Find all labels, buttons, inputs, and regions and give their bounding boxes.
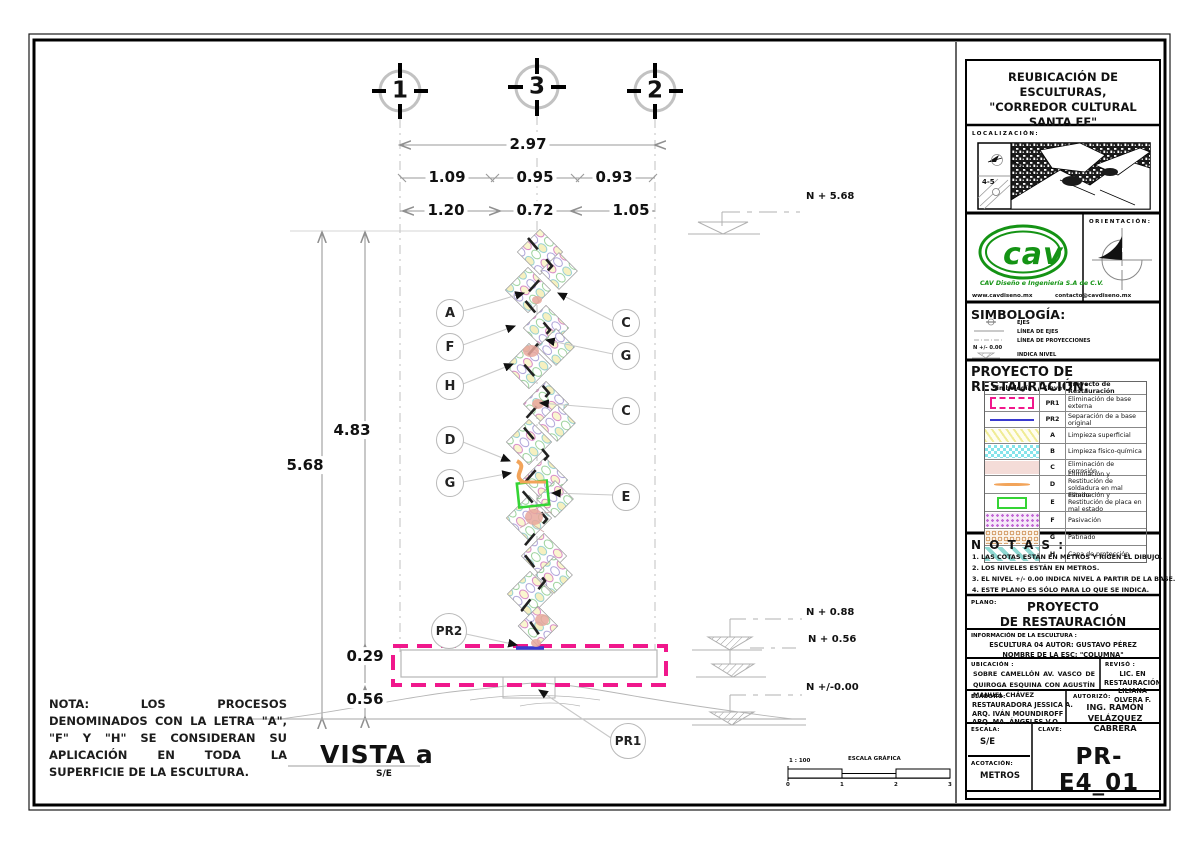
reviso-text: LIC. EN RESTAURACIÓN LILIANA OLVERA F. [1104,670,1161,704]
level-marker-top [688,212,800,234]
graphic-scale-bar [788,766,950,781]
dim-below-base: 0.56 [343,690,386,708]
project-title-line3: SANTA FE" [967,115,1159,130]
elaboro-line1: RESTAURADORA JESSICA A. [972,701,1073,710]
legend-table: Simbología Clave Proyecto de Restauració… [984,381,1147,563]
legend-header-clave: Clave [1040,382,1066,394]
callout-PR1: PR1 [610,723,646,759]
plano-line2: DE RESTAURACIÓN [967,615,1159,630]
orange-line-swatch [994,483,1030,486]
dim-0-93: 0.93 [592,168,635,186]
project-title: REUBICACIÓN DE ESCULTURAS, "CORREDOR CUL… [967,61,1159,130]
legend-header-row: Simbología Clave Proyecto de Restauració… [985,382,1146,394]
legend-header-desc: Proyecto de Restauración [1066,382,1146,394]
nota-3: 3. EL NIVEL +/- 0.00 INDICA NIVEL A PART… [972,574,1175,585]
vista-title: VISTA a [320,740,434,769]
callout-C-2: C [612,397,640,425]
callout-D: D [436,426,464,454]
cav-company: CAV Diseño e Ingeniería S.A de C.V. [980,280,1103,287]
drawing-note: NOTA: LOS PROCESOS DENOMINADOS CON LA LE… [49,696,287,781]
legend-row-e: E Eliminación y Restitución de placa en … [985,493,1146,511]
nota-4: 4. ESTE PLANO ES SÓLO PARA LO QUE SE IND… [972,585,1149,596]
legend-row-pr1: PR1 Eliminación de base externa [985,394,1146,411]
callout-F: F [436,333,464,361]
info-line2: NOMBRE DE LA ESC: "COLUMNA" [967,650,1159,660]
simbologia-item-linea-ejes: LÍNEA DE EJES [1017,329,1058,335]
legend-row-f: F Pasivación [985,511,1146,528]
level-base-mid-label: N + 0.56 [808,634,856,645]
simbologia-item-ejes: EJES [1017,320,1030,326]
title-block: REUBICACIÓN DE ESCULTURAS, "CORREDOR CUL… [965,59,1161,800]
cyan-checker-swatch [985,445,1039,458]
legend-row-a: A Limpieza superficial [985,427,1146,443]
dim-1-20: 1.20 [424,201,467,219]
notas-heading: N O T A S : [971,538,1065,552]
vista-scale: S/E [376,769,392,779]
scale-bar-tick-3: 3 [948,782,952,788]
dim-shaft-height: 4.83 [330,421,373,439]
purple-dots-swatch [985,513,1039,527]
drawing-sheet: 1 3 2 2.97 1.09 0.95 0.93 1.20 0.72 1.05… [0,0,1200,848]
sculpture-column [505,229,577,647]
legend-row-b: B Limpieza físico-química [985,443,1146,459]
axis-number-1: 1 [392,77,408,103]
axis-number-2: 2 [647,77,663,103]
callout-G-left: G [436,469,464,497]
green-rect-swatch [997,497,1027,509]
callout-E: E [612,483,640,511]
grid-axis-bubbles [372,58,683,119]
escala-value: S/E [980,737,995,747]
scale-bar-tick-1: 1 [840,782,844,788]
cav-logo-word: cav [1003,237,1064,272]
clave-value: PR-E4_01 [1037,744,1161,796]
pink-fill-swatch [985,461,1039,474]
localizacion-label: LOCALIZACIÓN: [972,131,1039,137]
scale-bar-ratio: 1 : 100 [789,758,810,764]
project-title-line1: REUBICACIÓN DE ESCULTURAS, [967,70,1159,100]
dim-total-height: 5.68 [283,456,326,474]
legend-row-d: D Eliminación y Restitución de soldadura… [985,475,1146,493]
scale-bar-label: ESCALA GRÁFICA [848,756,901,762]
simbologia-nivel-prefix: N +/- 0.00 [973,345,1002,351]
plano-value: PROYECTO DE RESTAURACIÓN [967,600,1159,630]
blue-line-swatch [990,419,1034,421]
level-top-label: N + 5.68 [806,191,854,202]
clave-label: CLAVE: [1038,727,1062,733]
callout-PR2: PR2 [431,613,467,649]
dim-overall: 2.97 [506,135,549,153]
axis-number-3: 3 [529,73,545,99]
info-lines: ESCULTURA 04 AUTOR: GUSTAVO PÉREZ NOMBRE… [967,640,1159,660]
orientacion-label: ORIENTACIÓN: [1089,219,1151,225]
weld-repair-mark [517,461,523,482]
dim-1-05: 1.05 [609,201,652,219]
acotacion-value: METROS [980,771,1020,781]
autorizo-line2: CABRERA [1069,723,1161,734]
nota-2: 2. LOS NIVELES ESTÁN EN METROS. [972,563,1099,574]
scale-bar-tick-0: 0 [786,782,790,788]
scale-bar-tick-2: 2 [894,782,898,788]
legend-row-pr2: PR2 Separación de a base original [985,411,1146,427]
nota-1: 1. LAS COTAS ESTÁN EN METROS Y RIGEN EL … [972,552,1162,563]
cav-email: contacto@cavdiseno.mx [1055,293,1131,299]
autorizo-label: AUTORIZÓ: [1073,694,1111,700]
info-label: INFORMACIÓN DE LA ESCULTURA : [971,633,1077,639]
dim-0-72: 0.72 [513,201,556,219]
acotacion-label: ACOTACIÓN: [971,761,1013,767]
dim-1-09: 1.09 [425,168,468,186]
callout-H: H [436,372,464,400]
info-line1: ESCULTURA 04 AUTOR: GUSTAVO PÉREZ [967,640,1159,650]
autorizo-line1: ING. RAMÓN VELÁZQUEZ [1069,702,1161,723]
map-grid-ref: 4-5 [982,178,995,186]
autorizo-text: ING. RAMÓN VELÁZQUEZ CABRERA [1069,702,1161,734]
level-markers-bottom [692,619,806,725]
dim-0-95: 0.95 [513,168,556,186]
sculpture-base [393,646,666,698]
plano-line1: PROYECTO [967,600,1159,615]
elaboro-label: ELABORÓ: [971,694,1006,700]
reviso-label: REVISÓ : [1105,662,1135,668]
legend-header-simbologia: Simbología [985,382,1040,394]
project-title-line2: "CORREDOR CULTURAL [967,100,1159,115]
elaboro-line3: ARQ. MA. ÁNGELES V.O [972,718,1073,727]
dim-base-height: 0.29 [343,647,386,665]
pink-dashed-rect-swatch [990,397,1034,409]
level-ground-label: N +/-0.00 [806,682,859,693]
callout-G-right: G [612,342,640,370]
level-base-top-label: N + 0.88 [806,607,854,618]
elaboro-line2: ARQ. IVÁN MOUNDIROFF [972,710,1073,719]
cav-website: www.cavdiseno.mx [972,293,1032,299]
elaboro-text: RESTAURADORA JESSICA A. ARQ. IVÁN MOUNDI… [972,701,1073,727]
simbologia-item-indica-nivel: INDICA NIVEL [1017,352,1056,358]
reviso-line1: LIC. EN RESTAURACIÓN [1104,670,1161,687]
simbologia-item-linea-proyecciones: LÍNEA DE PROYECCIONES [1017,338,1091,344]
yellow-hatch-swatch [985,429,1039,442]
callout-A: A [436,299,464,327]
callout-C-1: C [612,309,640,337]
escala-label: ESCALA: [971,727,1000,733]
ubicacion-label: UBICACIÓN : [971,662,1014,668]
